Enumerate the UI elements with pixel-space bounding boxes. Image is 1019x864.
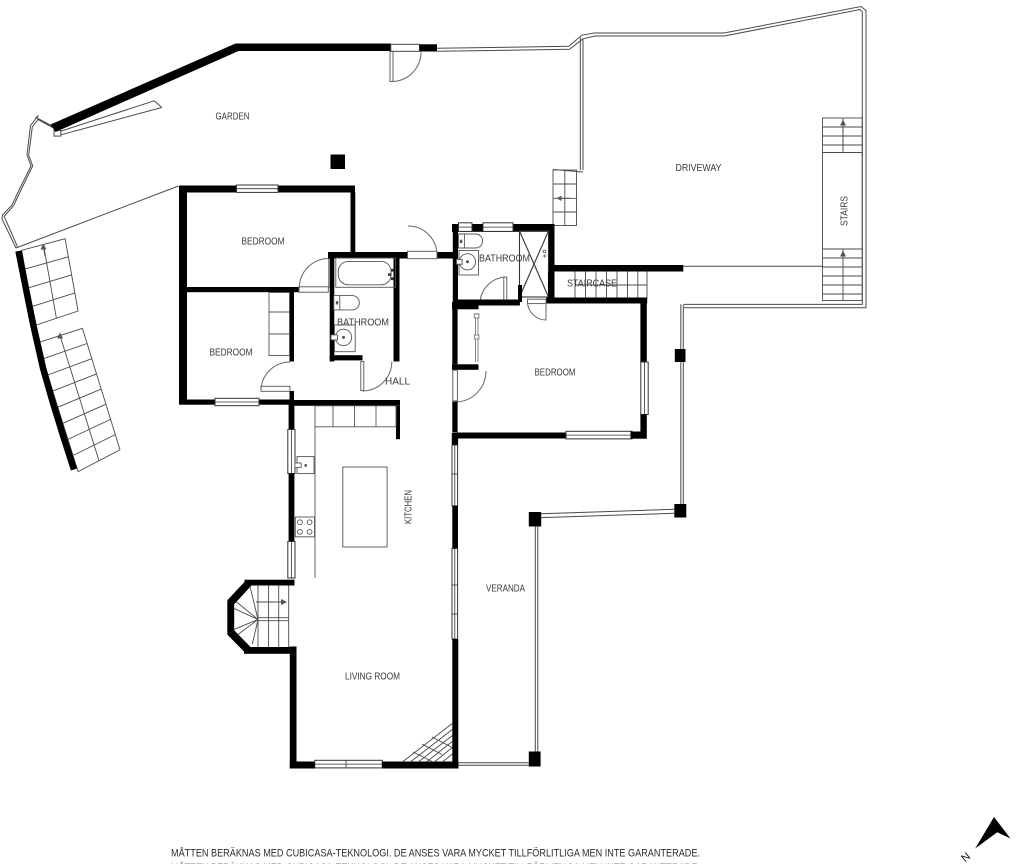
svg-text:BEDROOM: BEDROOM (210, 348, 253, 359)
svg-text:GARDEN: GARDEN (216, 112, 250, 123)
svg-text:DRIVEWAY: DRIVEWAY (676, 163, 722, 174)
svg-text:KITCHEN: KITCHEN (403, 490, 414, 524)
svg-text:BATHROOM: BATHROOM (337, 318, 389, 329)
svg-text:STAIRCASE: STAIRCASE (567, 279, 617, 290)
svg-text:BEDROOM: BEDROOM (242, 237, 285, 248)
svg-text:MÅTTEN BERÄKNAS MED CUBICASA-T: MÅTTEN BERÄKNAS MED CUBICASA-TEKNOLOGI. … (171, 847, 700, 860)
svg-text:LIVING ROOM: LIVING ROOM (345, 672, 400, 683)
svg-text:VERANDA: VERANDA (486, 584, 525, 595)
svg-text:BEDROOM: BEDROOM (535, 368, 576, 379)
svg-text:STAIRS: STAIRS (839, 196, 850, 226)
svg-text:BATHROOM: BATHROOM (479, 254, 530, 265)
svg-text:HALL: HALL (385, 377, 410, 388)
